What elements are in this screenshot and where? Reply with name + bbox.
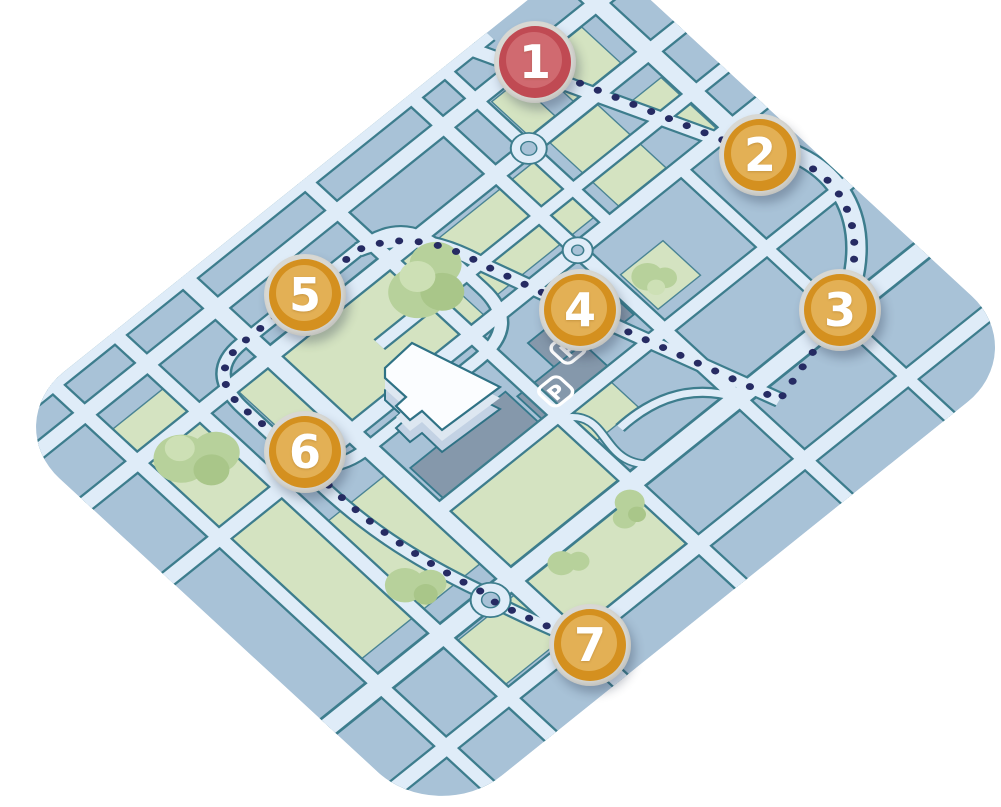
marker-number: 6: [264, 411, 346, 493]
route-marker-2[interactable]: 2: [719, 114, 801, 196]
map-screenshot: P P 1 2 3 4 5 6 7: [0, 0, 1001, 807]
route-marker-3[interactable]: 3: [799, 269, 881, 351]
marker-number: 7: [549, 604, 631, 686]
marker-number: 1: [494, 21, 576, 103]
marker-number: 4: [539, 269, 621, 351]
route-marker-7[interactable]: 7: [549, 604, 631, 686]
map-ground-plane: P P: [0, 0, 1001, 807]
marker-number: 2: [719, 114, 801, 196]
route-marker-6[interactable]: 6: [264, 411, 346, 493]
route-marker-4[interactable]: 4: [539, 269, 621, 351]
marker-number: 5: [264, 254, 346, 336]
route-marker-5[interactable]: 5: [264, 254, 346, 336]
route-marker-1[interactable]: 1: [494, 21, 576, 103]
marker-number: 3: [799, 269, 881, 351]
campus-map-illustration: P P: [0, 0, 1001, 807]
